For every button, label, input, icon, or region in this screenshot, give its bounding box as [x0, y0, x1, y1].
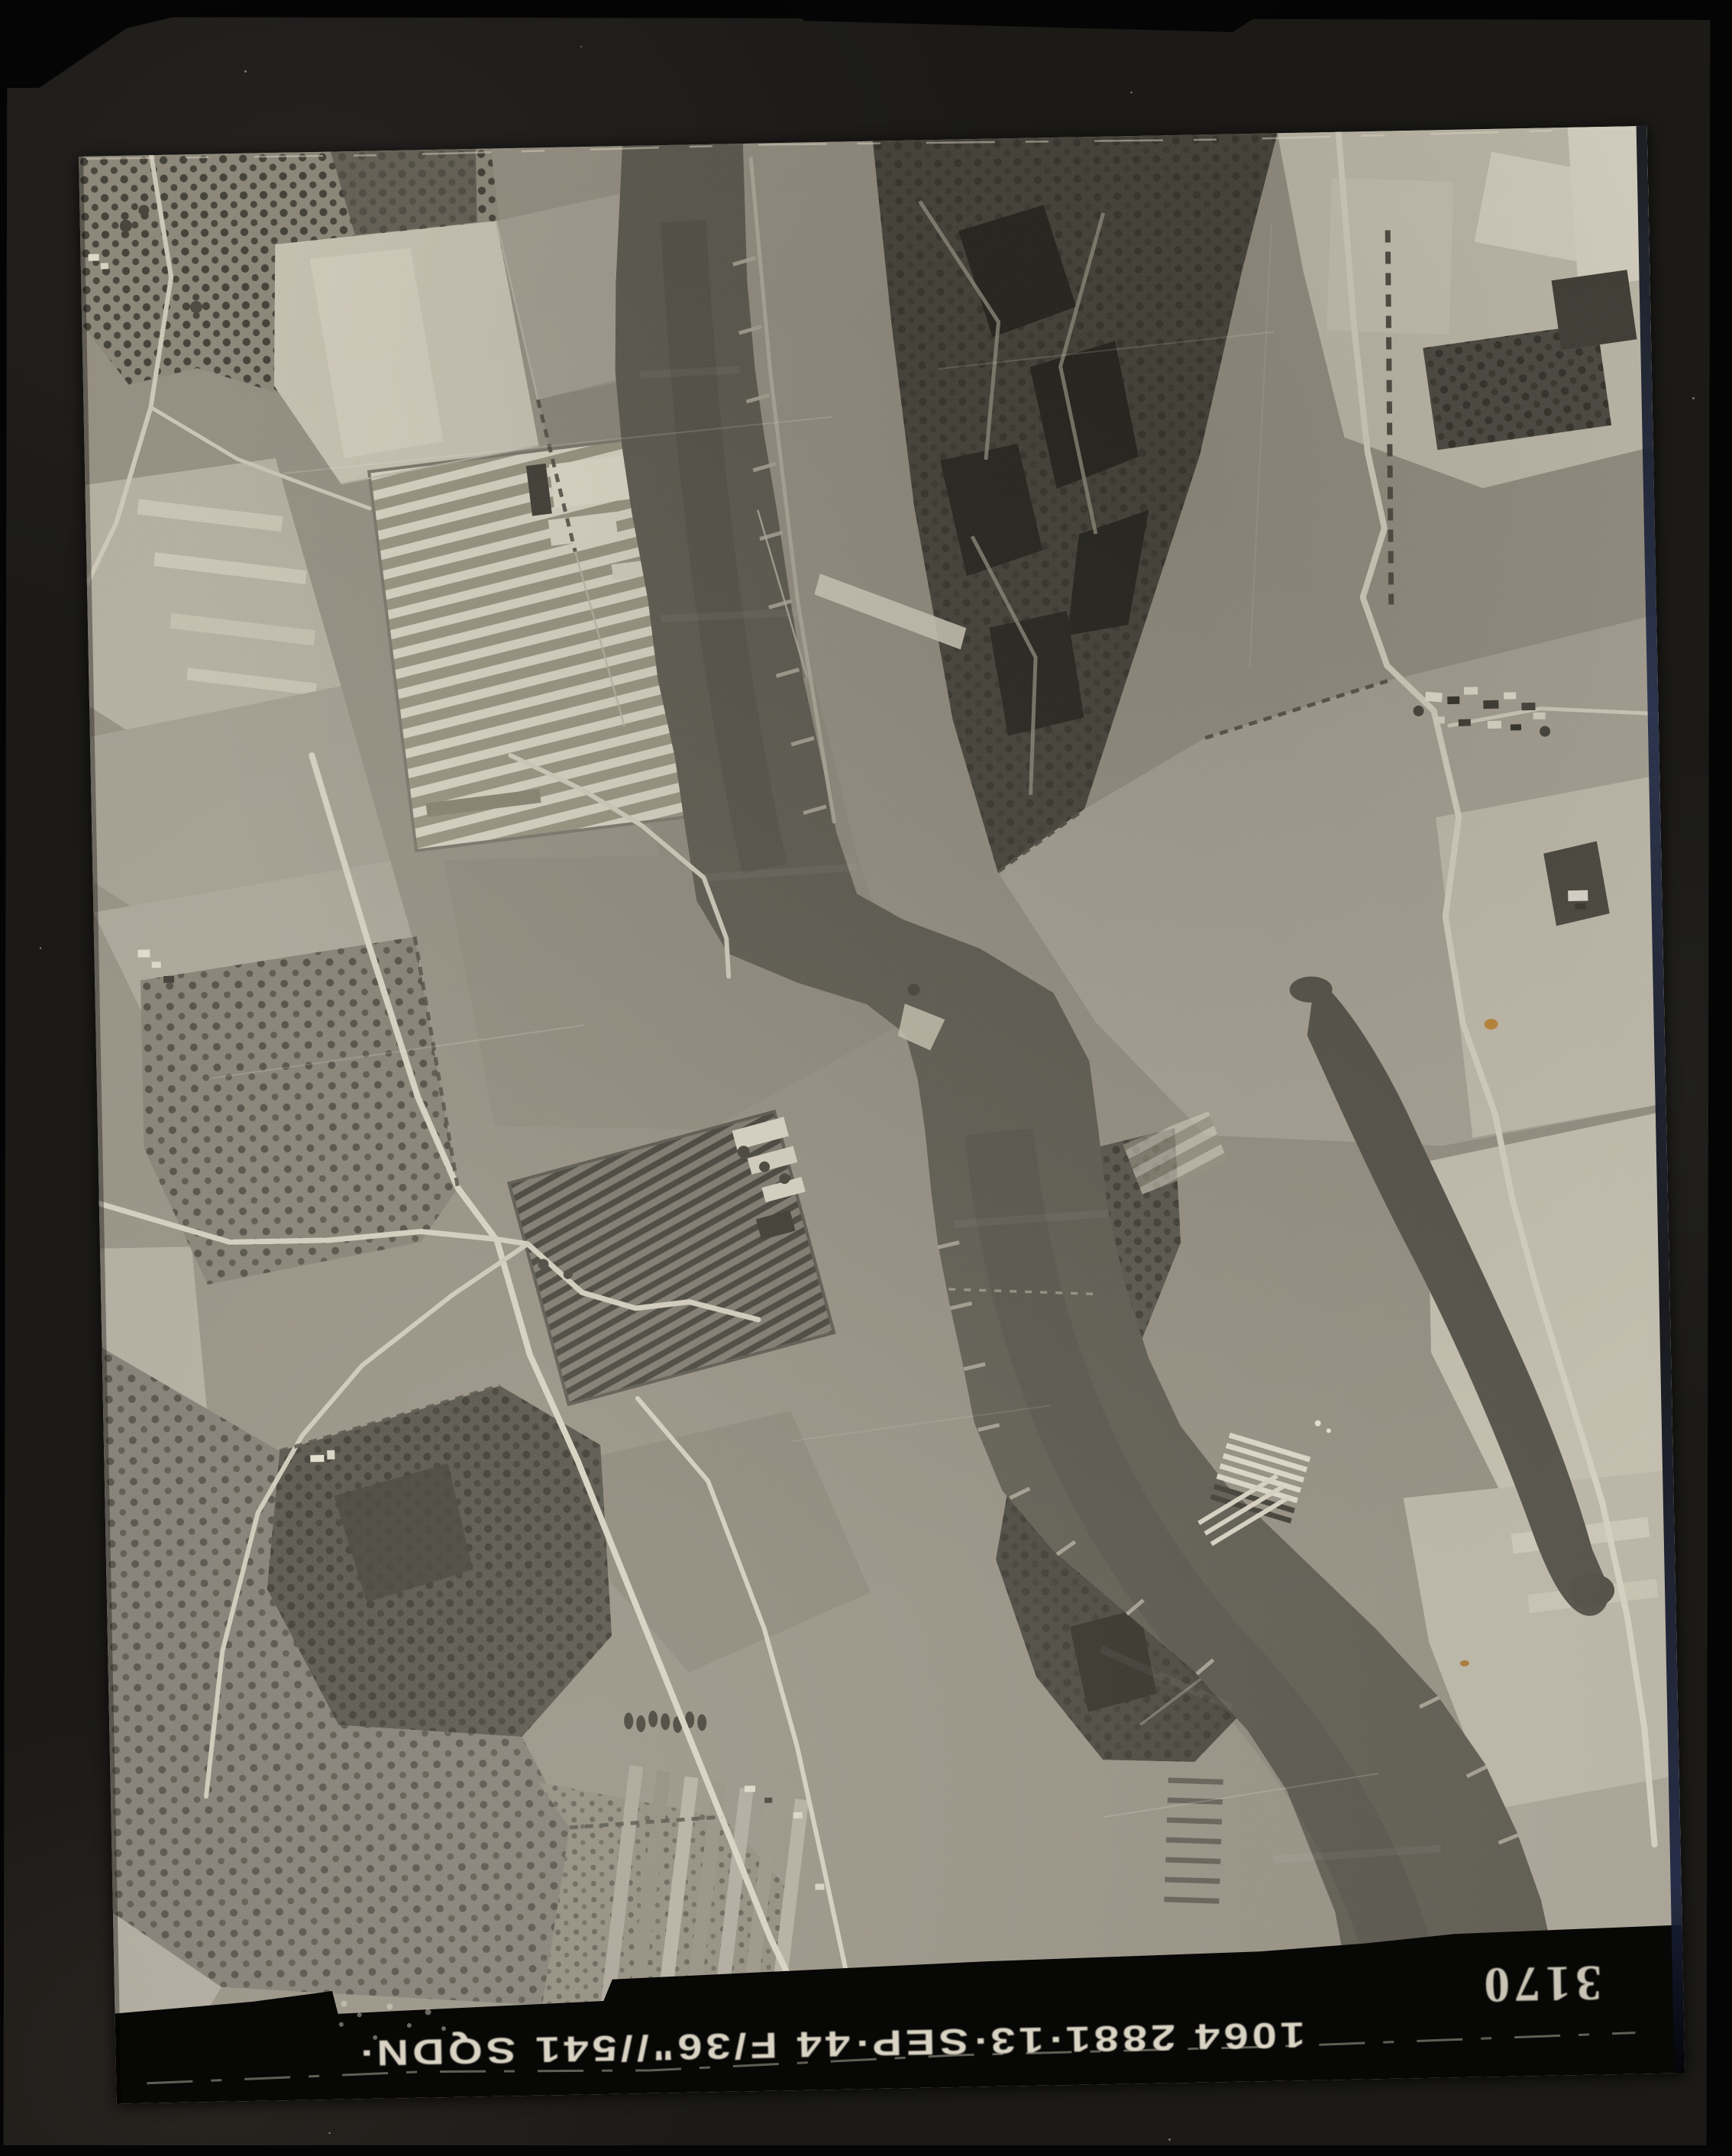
scan-background: 1064 2881·13·SEP·44 F/36"//541 SQDN· 317…	[0, 0, 1732, 2156]
caption-print-number: 3170	[1478, 1954, 1601, 2012]
dust-speck	[328, 2132, 331, 2134]
dust-speck	[1130, 92, 1133, 93]
aerial-photo-scene: 1064 2881·13·SEP·44 F/36"//541 SQDN· 317…	[79, 126, 1685, 2104]
dust-speck	[1692, 397, 1695, 399]
scan-edge-shadow	[0, 2145, 1732, 2156]
aerial-photograph: 1064 2881·13·SEP·44 F/36"//541 SQDN· 317…	[79, 126, 1685, 2104]
dust-speck	[1168, 2138, 1171, 2141]
dust-speck	[580, 46, 582, 47]
dust-speck	[244, 70, 247, 73]
grain-overlay	[79, 126, 1685, 2104]
dust-speck	[40, 947, 41, 949]
